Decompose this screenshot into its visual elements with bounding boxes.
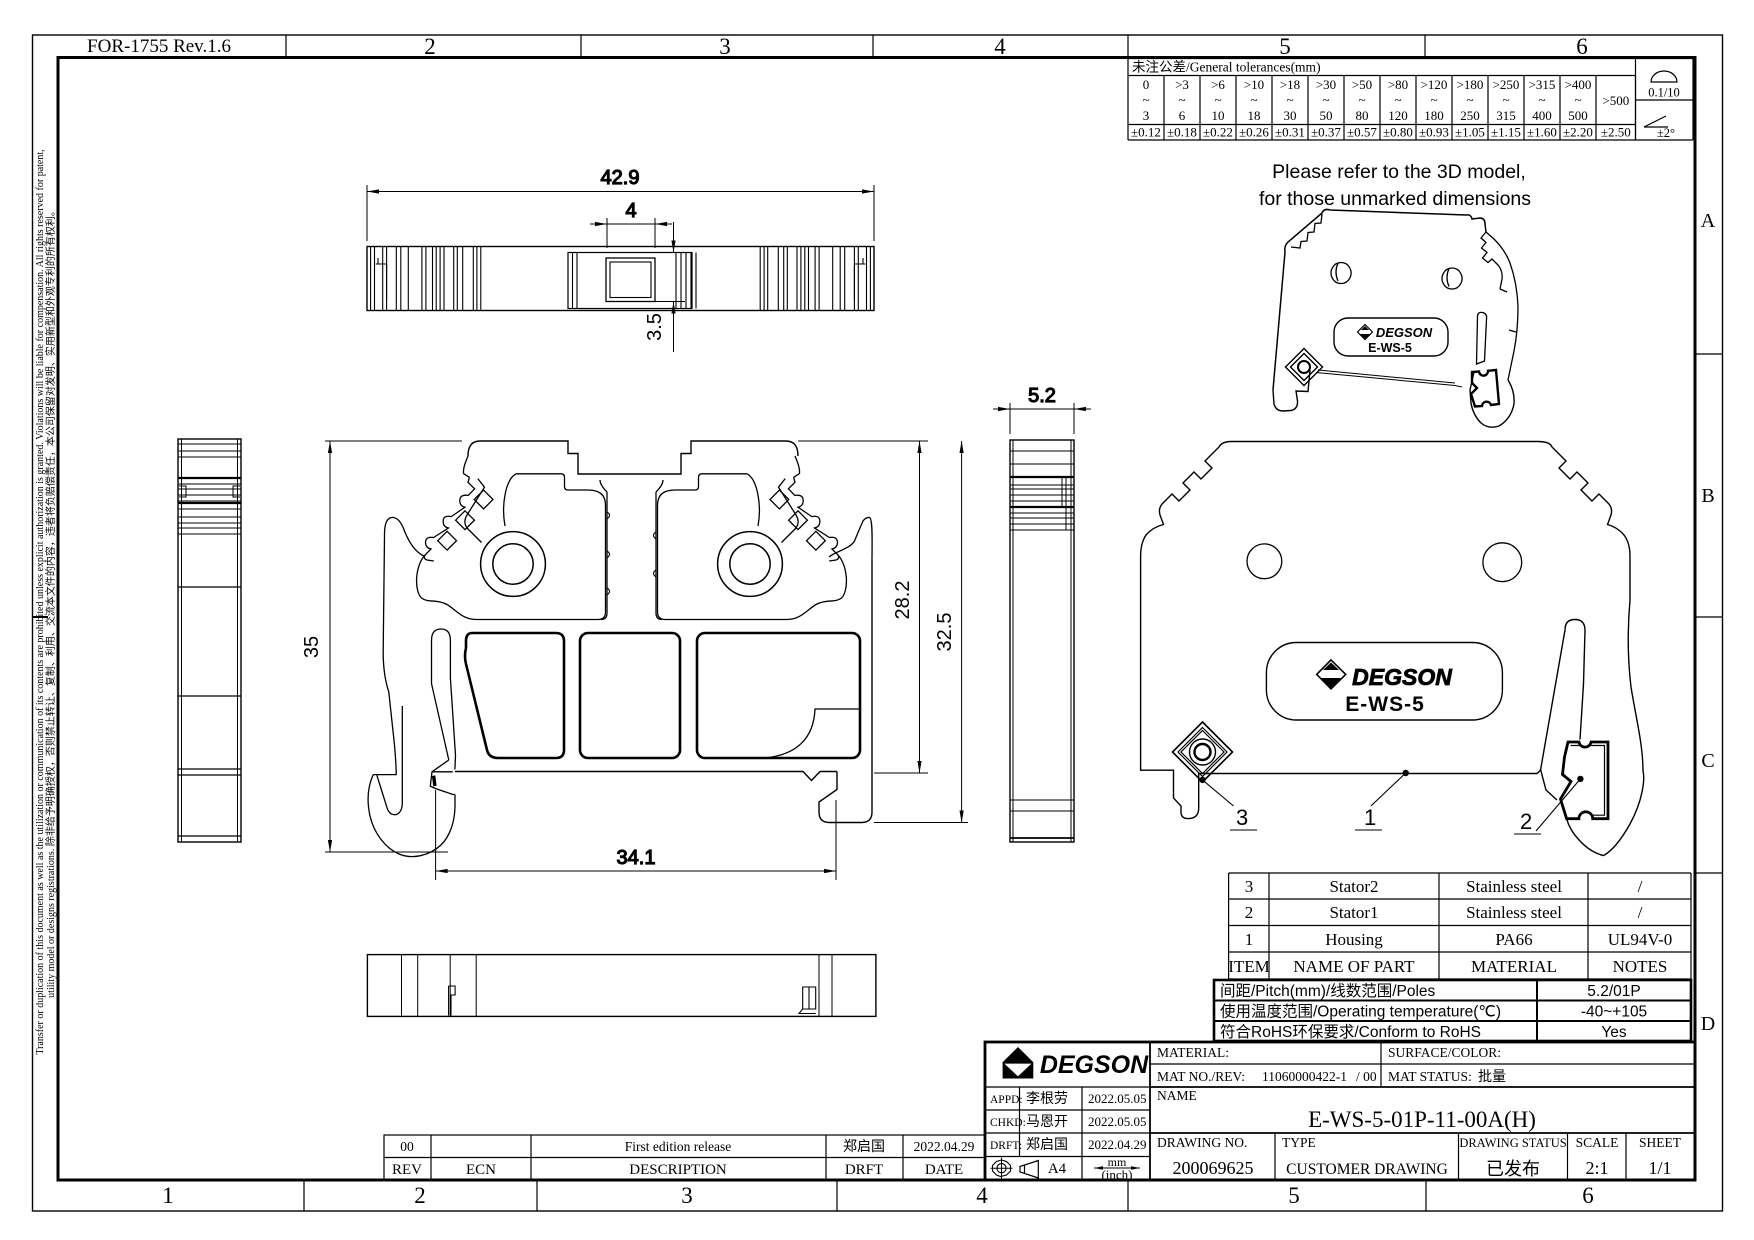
svg-text:CUSTOMER DRAWING: CUSTOMER DRAWING	[1286, 1161, 1448, 1178]
svg-text:C: C	[1701, 750, 1714, 772]
svg-text:32.5: 32.5	[934, 613, 956, 652]
svg-text:E-WS-5: E-WS-5	[1345, 693, 1425, 716]
svg-text:3: 3	[1236, 805, 1248, 830]
svg-text:2022.05.05: 2022.05.05	[1088, 1114, 1147, 1129]
svg-text:~: ~	[1502, 92, 1509, 107]
svg-text:5.2/01P: 5.2/01P	[1587, 983, 1640, 1000]
svg-text:2: 2	[1520, 809, 1532, 834]
svg-text:2022.05.05: 2022.05.05	[1088, 1091, 1147, 1106]
svg-text:Housing: Housing	[1325, 930, 1383, 949]
svg-text:for those unmarked dimensions: for those unmarked dimensions	[1259, 188, 1531, 210]
svg-text:250: 250	[1460, 108, 1480, 123]
svg-text:3: 3	[719, 34, 731, 59]
svg-text:郑启国: 郑启国	[843, 1139, 885, 1155]
svg-text:/: /	[1638, 903, 1643, 922]
svg-text:1/1: 1/1	[1648, 1158, 1671, 1178]
svg-text:±0.22: ±0.22	[1203, 125, 1233, 140]
svg-text:>3: >3	[1175, 77, 1189, 92]
svg-text:3.5: 3.5	[644, 313, 666, 341]
svg-text:2022.04.29: 2022.04.29	[1088, 1137, 1147, 1152]
svg-text:Stator1: Stator1	[1329, 903, 1378, 922]
svg-text:E-WS-5-01P-11-00A(H): E-WS-5-01P-11-00A(H)	[1308, 1107, 1536, 1132]
svg-text:郑启国: 郑启国	[1026, 1137, 1068, 1153]
svg-text:±2.20: ±2.20	[1563, 125, 1593, 140]
svg-text:11060000422-1: 11060000422-1	[1262, 1069, 1347, 1084]
svg-text:±2°: ±2°	[1657, 126, 1675, 140]
svg-text:NAME: NAME	[1157, 1088, 1197, 1103]
svg-text:1: 1	[1364, 805, 1376, 830]
svg-text:±1.05: ±1.05	[1455, 125, 1485, 140]
svg-text:~: ~	[1466, 92, 1473, 107]
svg-text:±1.15: ±1.15	[1491, 125, 1521, 140]
svg-text:>30: >30	[1316, 77, 1336, 92]
svg-text:DRFT: DRFT	[845, 1162, 883, 1178]
svg-text:~: ~	[1178, 92, 1185, 107]
svg-text:DEGSON: DEGSON	[1376, 325, 1433, 340]
svg-text:使用温度范围/Operating temperature(℃: 使用温度范围/Operating temperature(℃)	[1220, 1003, 1501, 1021]
svg-text:±0.37: ±0.37	[1311, 125, 1341, 140]
svg-text:6: 6	[1576, 34, 1588, 59]
svg-text:00: 00	[400, 1139, 414, 1154]
svg-text:3: 3	[681, 1183, 693, 1208]
svg-text:Stator2: Stator2	[1329, 877, 1378, 896]
svg-text:>315: >315	[1529, 77, 1556, 92]
svg-text:MATERIAL: MATERIAL	[1471, 957, 1557, 976]
svg-text:A4: A4	[1048, 1161, 1067, 1177]
svg-text:MAT STATUS:: MAT STATUS:	[1388, 1069, 1472, 1084]
svg-text:Stainless steel: Stainless steel	[1466, 903, 1562, 922]
svg-text:(inch): (inch)	[1101, 1167, 1132, 1182]
svg-text:DRAWING STATUS: DRAWING STATUS	[1459, 1136, 1566, 1150]
svg-text:D: D	[1701, 1013, 1715, 1035]
svg-text:80: 80	[1356, 108, 1369, 123]
svg-text:符合RoHS环保要求/Conform to RoHS: 符合RoHS环保要求/Conform to RoHS	[1220, 1023, 1481, 1041]
svg-text:3: 3	[1143, 108, 1150, 123]
svg-text:10: 10	[1212, 108, 1225, 123]
svg-text:~: ~	[1142, 92, 1149, 107]
svg-text:批量: 批量	[1478, 1069, 1506, 1085]
svg-text:180: 180	[1424, 108, 1444, 123]
svg-text:1: 1	[1245, 930, 1254, 949]
svg-text:0: 0	[1143, 77, 1150, 92]
svg-text:Yes: Yes	[1601, 1024, 1627, 1041]
svg-text:4: 4	[625, 200, 636, 222]
svg-text:>10: >10	[1244, 77, 1264, 92]
svg-text:5: 5	[1288, 1183, 1300, 1208]
svg-text:DRAWING NO.: DRAWING NO.	[1157, 1135, 1247, 1150]
svg-text:2: 2	[424, 34, 436, 59]
svg-text:5.2: 5.2	[1028, 385, 1056, 407]
svg-text:-40~+105: -40~+105	[1581, 1004, 1647, 1021]
svg-text:NAME OF PART: NAME OF PART	[1293, 957, 1415, 976]
svg-text:±0.31: ±0.31	[1275, 125, 1305, 140]
svg-text:500: 500	[1568, 108, 1588, 123]
svg-text:CHKD:: CHKD:	[990, 1117, 1026, 1129]
svg-text:DATE: DATE	[925, 1162, 963, 1178]
svg-text:30: 30	[1284, 108, 1297, 123]
svg-text:DRFT:: DRFT:	[990, 1140, 1022, 1152]
svg-text:马恩开: 马恩开	[1026, 1114, 1068, 1130]
svg-text:已发布: 已发布	[1486, 1159, 1540, 1179]
svg-text:2: 2	[414, 1183, 426, 1208]
svg-text:>500: >500	[1602, 93, 1629, 108]
svg-text:FOR-1755 Rev.1.6: FOR-1755 Rev.1.6	[87, 36, 231, 57]
svg-text:PA66: PA66	[1495, 930, 1532, 949]
svg-text:>50: >50	[1352, 77, 1372, 92]
svg-text:±0.80: ±0.80	[1383, 125, 1413, 140]
svg-text:2: 2	[1245, 903, 1254, 922]
svg-text:4: 4	[976, 1183, 988, 1208]
svg-text:>80: >80	[1388, 77, 1408, 92]
svg-text:~: ~	[1358, 92, 1365, 107]
svg-text:/ 00: / 00	[1356, 1069, 1377, 1084]
svg-text:6: 6	[1179, 108, 1186, 123]
svg-text:UL94V-0: UL94V-0	[1608, 930, 1673, 949]
svg-text:±0.18: ±0.18	[1167, 125, 1197, 140]
svg-text:SURFACE/COLOR:: SURFACE/COLOR:	[1388, 1045, 1501, 1060]
svg-text:±0.57: ±0.57	[1347, 125, 1377, 140]
svg-text:4: 4	[994, 34, 1006, 59]
svg-text:DESCRIPTION: DESCRIPTION	[629, 1162, 727, 1178]
svg-text:±2.50: ±2.50	[1601, 125, 1631, 140]
svg-text:18: 18	[1248, 108, 1261, 123]
svg-text:~: ~	[1322, 92, 1329, 107]
svg-text:~: ~	[1250, 92, 1257, 107]
svg-text:TYPE: TYPE	[1282, 1135, 1316, 1150]
svg-text:>180: >180	[1457, 77, 1484, 92]
svg-text:~: ~	[1574, 92, 1581, 107]
svg-text:±1.60: ±1.60	[1527, 125, 1557, 140]
svg-text:>120: >120	[1421, 77, 1448, 92]
svg-text:未注公差/General tolerances(mm): 未注公差/General tolerances(mm)	[1132, 60, 1321, 75]
svg-text:MATERIAL:: MATERIAL:	[1157, 1045, 1229, 1060]
svg-text:35: 35	[301, 636, 323, 658]
svg-text:400: 400	[1532, 108, 1552, 123]
svg-text:李根劳: 李根劳	[1026, 1091, 1068, 1107]
svg-text:±0.26: ±0.26	[1239, 125, 1269, 140]
svg-text:~: ~	[1430, 92, 1437, 107]
svg-text:APPD:: APPD:	[990, 1094, 1023, 1106]
svg-text:间距/Pitch(mm)/线数范围/Poles: 间距/Pitch(mm)/线数范围/Poles	[1220, 982, 1436, 1000]
svg-text:MAT NO./REV:: MAT NO./REV:	[1157, 1069, 1245, 1084]
svg-text:SCALE: SCALE	[1576, 1135, 1619, 1150]
svg-text:~: ~	[1286, 92, 1293, 107]
svg-text:ITEM: ITEM	[1228, 957, 1270, 976]
svg-text:42.9: 42.9	[601, 167, 640, 189]
svg-text:Please refer to the 3D model,: Please refer to the 3D model,	[1272, 161, 1526, 183]
svg-text:DEGSON: DEGSON	[1352, 664, 1452, 690]
svg-text:A: A	[1701, 210, 1716, 232]
svg-text:DEGSON: DEGSON	[1040, 1051, 1149, 1079]
svg-text:50: 50	[1320, 108, 1333, 123]
svg-text:5: 5	[1279, 34, 1291, 59]
svg-text:2022.04.29: 2022.04.29	[914, 1139, 975, 1154]
svg-text:~: ~	[1214, 92, 1221, 107]
svg-text:120: 120	[1388, 108, 1408, 123]
svg-text:~: ~	[1538, 92, 1545, 107]
svg-text:0.1/10: 0.1/10	[1648, 86, 1680, 100]
svg-text:±0.12: ±0.12	[1131, 125, 1161, 140]
svg-text:34.1: 34.1	[617, 847, 656, 869]
svg-text:B: B	[1701, 485, 1714, 507]
svg-text:First edition release: First edition release	[625, 1139, 731, 1154]
svg-text:2:1: 2:1	[1585, 1158, 1608, 1178]
svg-text:1: 1	[162, 1183, 174, 1208]
svg-text:utility model or designs regis: utility model or designs registrations. …	[44, 206, 57, 998]
svg-text:REV: REV	[392, 1162, 422, 1178]
svg-text:~: ~	[1394, 92, 1401, 107]
svg-text:3: 3	[1245, 877, 1254, 896]
svg-text:/: /	[1638, 877, 1643, 896]
svg-text:>6: >6	[1211, 77, 1225, 92]
svg-text:±0.93: ±0.93	[1419, 125, 1449, 140]
svg-text:Transfer or duplication of thi: Transfer or duplication of this document…	[35, 149, 46, 1054]
svg-text:6: 6	[1582, 1183, 1594, 1208]
svg-text:ECN: ECN	[466, 1162, 496, 1178]
svg-text:>18: >18	[1280, 77, 1300, 92]
svg-text:>250: >250	[1493, 77, 1520, 92]
svg-text:315: 315	[1496, 108, 1516, 123]
svg-text:NOTES: NOTES	[1613, 957, 1668, 976]
svg-text:>400: >400	[1565, 77, 1592, 92]
svg-text:E-WS-5: E-WS-5	[1368, 341, 1412, 355]
svg-text:200069625: 200069625	[1173, 1158, 1254, 1178]
svg-text:Stainless steel: Stainless steel	[1466, 877, 1562, 896]
svg-text:28.2: 28.2	[892, 581, 914, 620]
svg-text:SHEET: SHEET	[1639, 1135, 1682, 1150]
